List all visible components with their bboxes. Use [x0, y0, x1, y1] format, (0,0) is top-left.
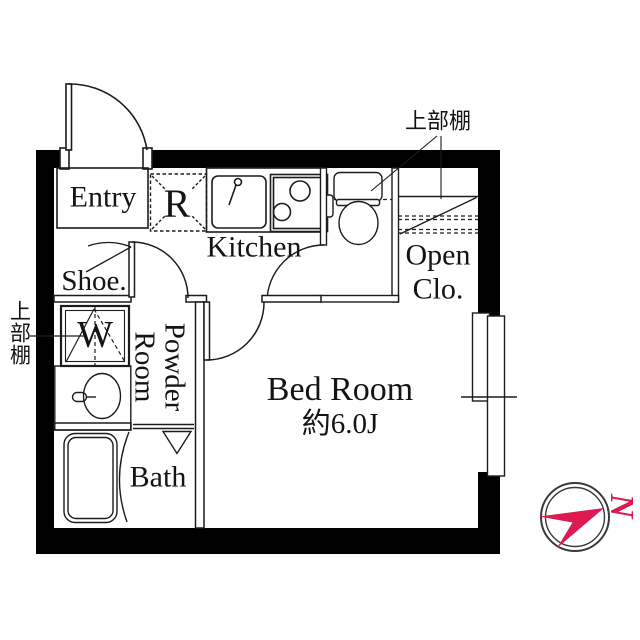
refrigerator-label: R — [164, 183, 191, 225]
north-label: N — [602, 494, 640, 519]
shoe-label: Shoe. — [61, 266, 126, 296]
kitchen-label: Kitchen — [207, 231, 302, 263]
powder-room-label-line2: Room — [129, 323, 159, 412]
stove — [271, 175, 328, 232]
open-closet-label-line2: Clo. — [406, 272, 471, 306]
powder-room-label: Powder Room — [129, 323, 190, 412]
hanger-pipe-lines — [398, 216, 478, 233]
bedroom-size-label: 約6.0J — [302, 409, 379, 439]
open-closet — [398, 197, 478, 235]
upper-shelf-label-left: 上部棚 — [9, 300, 30, 366]
burner — [290, 181, 310, 201]
entry-label: Entry — [70, 181, 137, 213]
open-closet-label: Open Clo. — [406, 238, 471, 305]
sink — [212, 176, 266, 228]
powder-room-label-line1: Powder — [159, 323, 189, 412]
bedroom-door — [204, 302, 264, 360]
open-closet-label-line1: Open — [406, 238, 471, 272]
faucet-icon — [235, 179, 242, 186]
powder-room-door — [129, 242, 188, 298]
floor-plan: Entry R Kitchen Shoe. W Powder Room Bath… — [0, 0, 640, 640]
bath-door-swing — [119, 432, 129, 522]
burner — [274, 204, 291, 221]
bath-label: Bath — [130, 461, 187, 493]
upper-shelf-label-top: 上部棚 — [405, 109, 471, 132]
compass — [539, 483, 609, 551]
bathtub — [64, 434, 117, 523]
toilet — [324, 173, 382, 245]
wash-basin — [55, 366, 131, 430]
folding-door-icon — [163, 432, 191, 454]
washer-label: W — [77, 316, 113, 356]
bedroom-label: Bed Room — [267, 372, 413, 408]
kitchen-counter — [207, 168, 328, 232]
sliding-window — [461, 313, 517, 476]
north-arrow-icon — [539, 508, 604, 548]
entrance-door — [60, 84, 152, 169]
